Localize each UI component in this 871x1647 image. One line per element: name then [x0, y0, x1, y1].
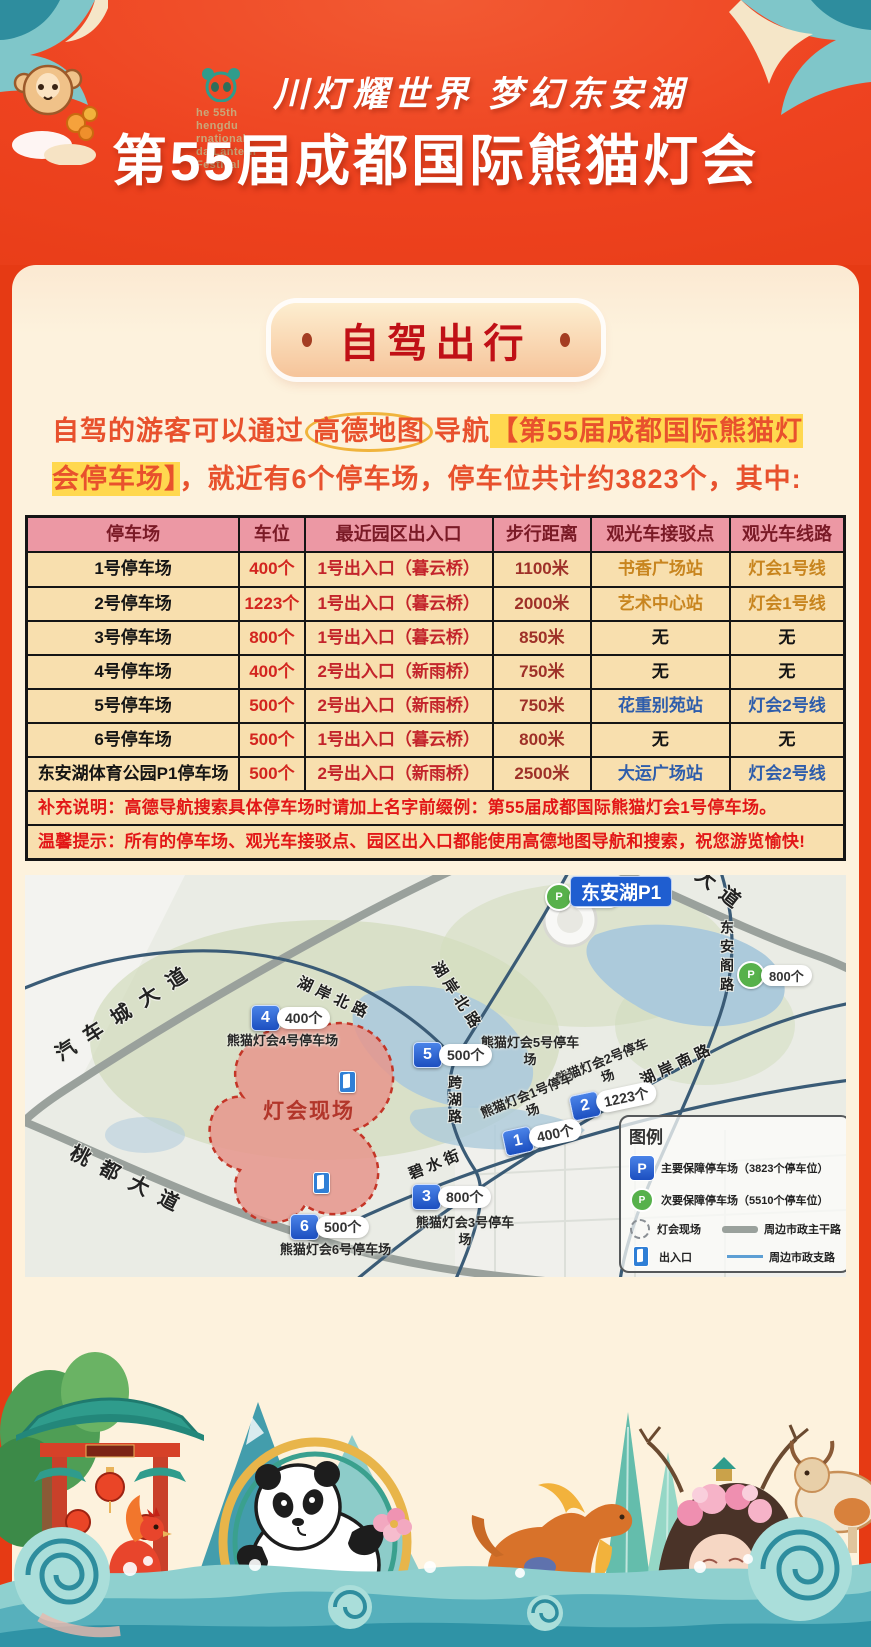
lantern-site-label: 灯会现场 [263, 1095, 355, 1125]
road-label-dongange: 东安阁路 [717, 920, 737, 996]
legend-label: 出入口 [659, 1249, 721, 1265]
entrance-door-icon [633, 1246, 649, 1267]
circled-gaode-text: 高德地图 [305, 412, 433, 452]
cell-shuttle-line: 灯会1号线 [730, 552, 845, 586]
cell-parking-name: 6号停车场 [27, 723, 240, 757]
parking-marker-5: 5 500个 [413, 1042, 492, 1068]
table-row: 3号停车场 800个 1号出入口（暮云桥） 850米 无 无 [27, 621, 845, 655]
cell-parking-name: 2号停车场 [27, 587, 240, 621]
badge-dot-icon [560, 333, 570, 347]
tip-note: 温馨提示：所有的停车场、观光车接驳点、园区出入口都能使用高德地图导航和搜索，祝您… [27, 825, 845, 860]
marker-count: 500个 [316, 1216, 369, 1238]
col-header-shuttle-line: 观光车线路 [730, 517, 845, 553]
cell-distance: 800米 [493, 723, 591, 757]
legend-label: 灯会现场 [657, 1221, 716, 1237]
cell-shuttle-stop: 艺术中心站 [591, 587, 730, 621]
cell-spots: 500个 [239, 757, 304, 791]
entrance-door-icon [339, 1071, 356, 1093]
legend-label: 次要保障停车场（5510个停车位） [661, 1192, 828, 1208]
note-row-supplement: 补充说明：高德导航搜索具体停车场时请加上名字前缀例：第55届成都国际熊猫灯会1号… [27, 791, 845, 825]
cell-parking-name: 东安湖体育公园P1停车场 [27, 757, 240, 791]
road-label-kuahu: 跨湖路 [445, 1075, 465, 1126]
col-header-shuttle-stop: 观光车接驳点 [591, 517, 730, 553]
green-p-icon: P [630, 1188, 654, 1212]
parking-marker-4-label: 熊猫灯会4号停车场 [225, 1033, 340, 1049]
support-road-line-icon [727, 1255, 763, 1258]
marker-count: 800个 [438, 1186, 491, 1208]
cell-shuttle-stop: 无 [591, 723, 730, 757]
cell-shuttle-stop: 无 [591, 621, 730, 655]
col-header-gate: 最近园区出入口 [305, 517, 493, 553]
cell-spots: 500个 [239, 689, 304, 723]
section-badge-label: 自驾出行 [340, 311, 532, 369]
marker-number-icon: 3 [412, 1184, 441, 1210]
poster-page: he 55th hengdu rnational da Lantern Fest… [0, 0, 871, 1647]
cell-shuttle-stop: 花重别苑站 [591, 689, 730, 723]
cell-gate: 1号出入口（暮云桥） [305, 723, 493, 757]
intro-paragraph: 自驾的游客可以通过高德地图导航【第55届成都国际熊猫灯会停车场】，就近有6个停车… [52, 407, 819, 503]
intro-text: ，就近有6个停车场，停车位共计约3823个，其中: [180, 464, 802, 494]
table-header-row: 停车场 车位 最近园区出入口 步行距离 观光车接驳点 观光车线路 [27, 517, 845, 553]
parking-marker-4: 4 400个 [251, 1005, 330, 1031]
cell-shuttle-line: 无 [730, 655, 845, 689]
cell-spots: 1223个 [239, 587, 304, 621]
legend-title: 图例 [629, 1123, 841, 1148]
marker-number-icon: 5 [413, 1042, 442, 1068]
marker-count: 800个 [761, 965, 812, 986]
cell-parking-name: 3号停车场 [27, 621, 240, 655]
cell-distance: 1100米 [493, 552, 591, 586]
cell-shuttle-stop: 大运广场站 [591, 757, 730, 791]
parking-map: 东安湖P1 P 479个 P 800个 4 400个 熊猫灯会4号停车场 5 5… [25, 875, 846, 1277]
cell-gate: 1号出入口（暮云桥） [305, 621, 493, 655]
marker-number-icon: 4 [251, 1005, 280, 1031]
table-row: 5号停车场 500个 2号出入口（新雨桥） 750米 花重别苑站 灯会2号线 [27, 689, 845, 723]
badge-dot-icon [302, 333, 312, 347]
cell-distance: 750米 [493, 655, 591, 689]
table-row: 1号停车场 400个 1号出入口（暮云桥） 1100米 书香广场站 灯会1号线 [27, 552, 845, 586]
lantern-icon [96, 1473, 124, 1501]
cell-distance: 2500米 [493, 757, 591, 791]
blue-p-icon: P [629, 1155, 655, 1181]
cell-gate: 2号出入口（新雨桥） [305, 757, 493, 791]
cell-shuttle-stop: 书香广场站 [591, 552, 730, 586]
col-header-spots: 车位 [239, 517, 304, 553]
cell-parking-name: 5号停车场 [27, 689, 240, 723]
supplement-note: 补充说明：高德导航搜索具体停车场时请加上名字前缀例：第55届成都国际熊猫灯会1号… [27, 791, 845, 825]
cell-distance: 850米 [493, 621, 591, 655]
col-header-parking: 停车场 [27, 517, 240, 553]
table-row: 6号停车场 500个 1号出入口（暮云桥） 800米 无 无 [27, 723, 845, 757]
parking-marker-6: 6 500个 [290, 1214, 369, 1240]
legend-row-secondary-parking: P 次要保障停车场（5510个停车位） [629, 1188, 841, 1212]
cell-shuttle-line: 灯会2号线 [730, 757, 845, 791]
cell-parking-name: 1号停车场 [27, 552, 240, 586]
note-row-tip: 温馨提示：所有的停车场、观光车接驳点、园区出入口都能使用高德地图导航和搜索，祝您… [27, 825, 845, 860]
legend-row-site: 灯会现场 周边市政主干路 [629, 1219, 841, 1239]
cell-gate: 2号出入口（新雨桥） [305, 689, 493, 723]
legend-label: 周边市政主干路 [764, 1221, 841, 1237]
cell-distance: 750米 [493, 689, 591, 723]
donganhu-p1-badge: 东安湖P1 [570, 876, 672, 907]
parking-marker-3-label: 熊猫灯会3号停车场 [410, 1215, 520, 1248]
col-header-distance: 步行距离 [493, 517, 591, 553]
intro-text: 导航 [434, 416, 490, 446]
marker-count: 500个 [439, 1044, 492, 1066]
parking-marker-3: 3 800个 [412, 1184, 491, 1210]
footer-illustration [0, 1317, 871, 1647]
main-road-line-icon [722, 1226, 758, 1233]
table-row: 2号停车场 1223个 1号出入口（暮云桥） 2000米 艺术中心站 灯会1号线 [27, 587, 845, 621]
cell-shuttle-stop: 无 [591, 655, 730, 689]
legend-row-main-parking: P 主要保障停车场（3823个停车位） [629, 1155, 841, 1181]
marker-count: 400个 [277, 1007, 330, 1029]
cell-gate: 1号出入口（暮云桥） [305, 587, 493, 621]
cell-spots: 800个 [239, 621, 304, 655]
cell-shuttle-line: 灯会1号线 [730, 587, 845, 621]
marker-number-icon: 6 [290, 1214, 319, 1240]
legend-label: 周边市政支路 [769, 1249, 835, 1265]
parking-table: 停车场 车位 最近园区出入口 步行距离 观光车接驳点 观光车线路 1号停车场 4… [25, 515, 846, 861]
table-row: 东安湖体育公园P1停车场 500个 2号出入口（新雨桥） 2500米 大运广场站… [27, 757, 845, 791]
intro-text: 自驾的游客可以通过 [52, 416, 304, 446]
festival-slogan: 川灯耀世界 梦幻东安湖 [90, 66, 871, 117]
cell-shuttle-line: 无 [730, 621, 845, 655]
cell-parking-name: 4号停车场 [27, 655, 240, 689]
table-row: 4号停车场 400个 2号出入口（新雨桥） 750米 无 无 [27, 655, 845, 689]
cell-gate: 1号出入口（暮云桥） [305, 552, 493, 586]
cell-shuttle-line: 灯会2号线 [730, 689, 845, 723]
cell-spots: 400个 [239, 552, 304, 586]
parking-marker-6-label: 熊猫灯会6号停车场 [273, 1242, 398, 1258]
header-banner: he 55th hengdu rnational da Lantern Fest… [0, 0, 871, 265]
entrance-door-icon [313, 1172, 330, 1194]
cell-spots: 500个 [239, 723, 304, 757]
cell-spots: 400个 [239, 655, 304, 689]
cell-shuttle-line: 无 [730, 723, 845, 757]
map-legend: 图例 P 主要保障停车场（3823个停车位） P 次要保障停车场（5510个停车… [619, 1115, 846, 1273]
legend-label: 主要保障停车场（3823个停车位） [661, 1160, 828, 1176]
section-badge: 自驾出行 [271, 303, 601, 377]
secondary-parking-marker: P 800个 [737, 961, 812, 989]
dashed-circle-icon [630, 1219, 650, 1239]
legend-row-entrance: 出入口 周边市政支路 [629, 1246, 841, 1267]
cell-distance: 2000米 [493, 587, 591, 621]
festival-title: 第55届成都国际熊猫灯会 [0, 116, 871, 196]
cell-gate: 2号出入口（新雨桥） [305, 655, 493, 689]
